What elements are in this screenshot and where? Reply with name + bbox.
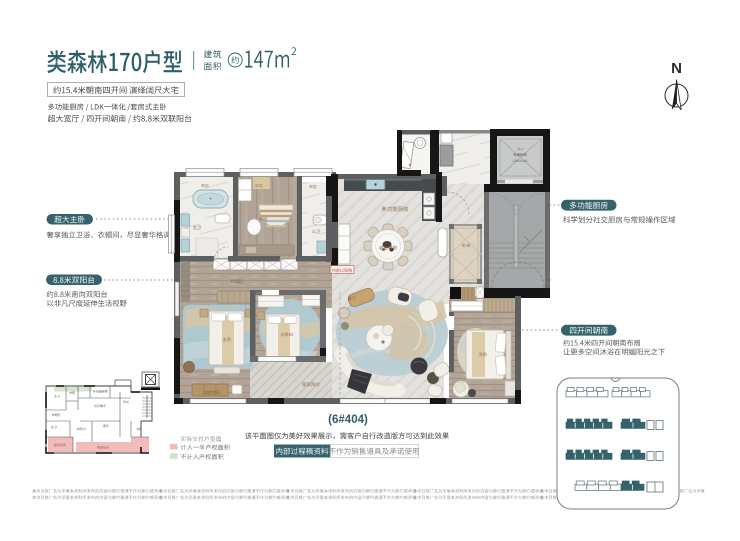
- svg-text:(6#404): (6#404): [328, 414, 368, 426]
- svg-text:N: N: [671, 60, 682, 77]
